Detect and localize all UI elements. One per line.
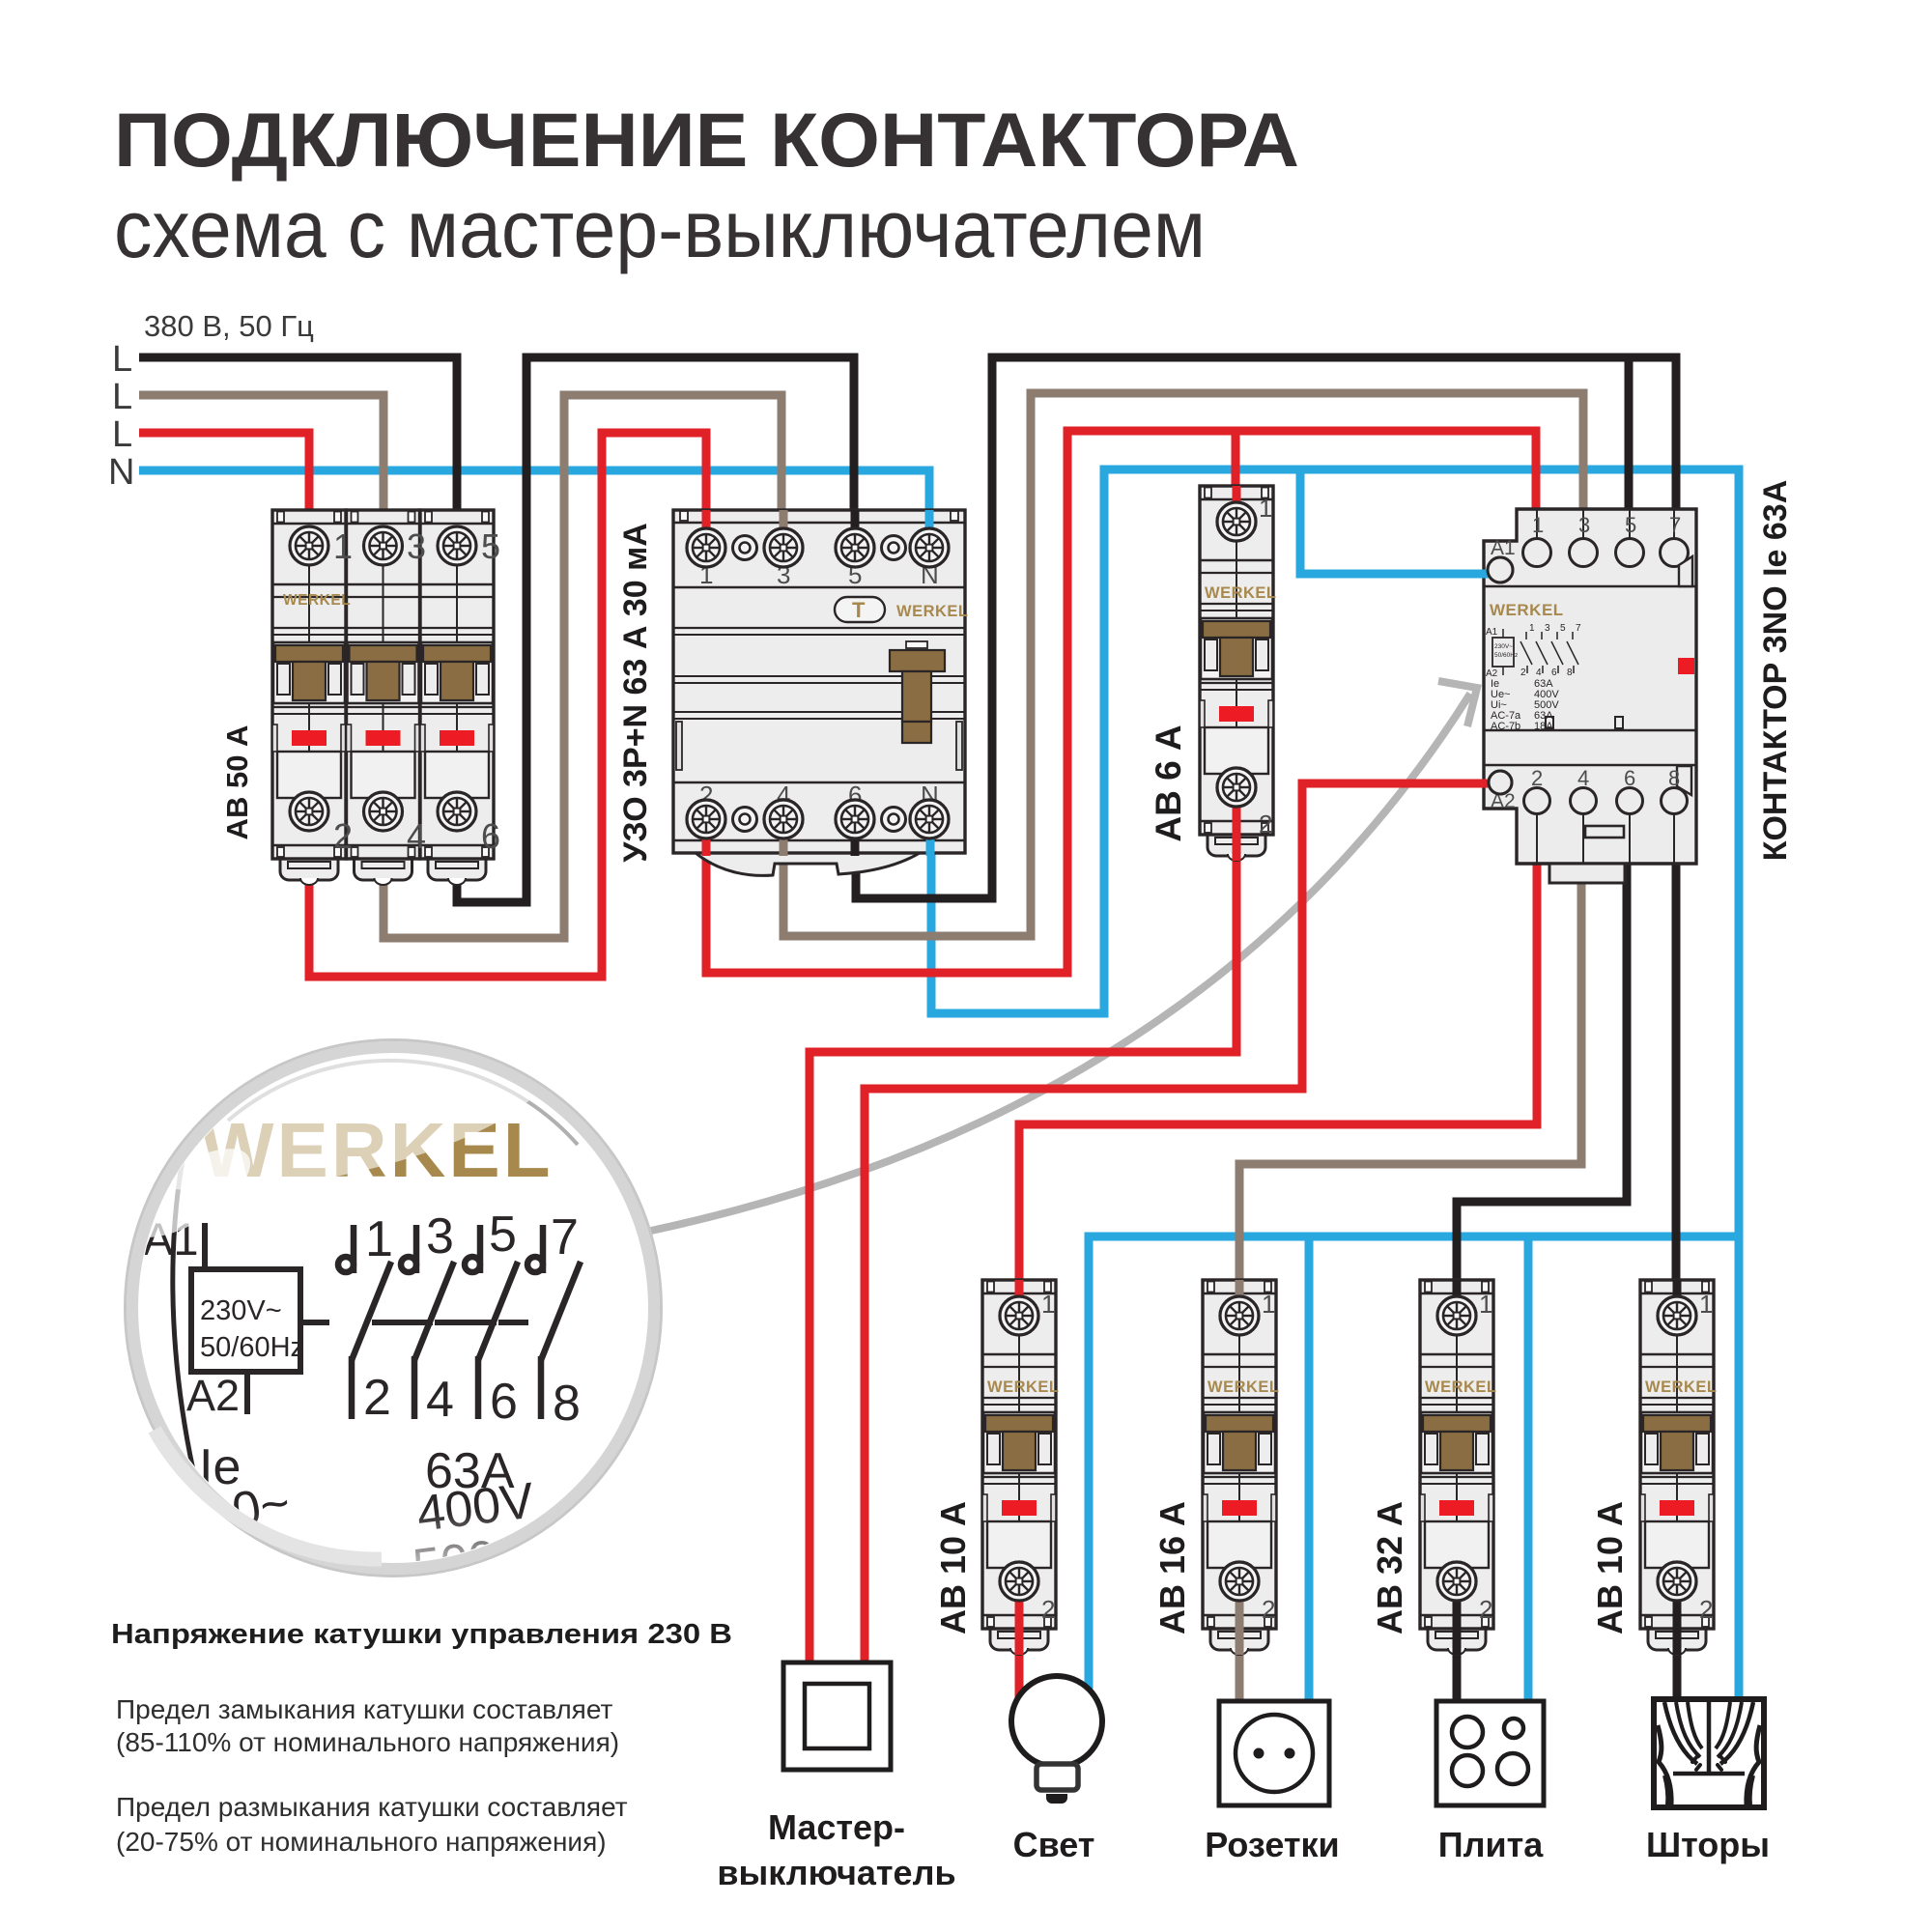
svg-text:1: 1 [1259, 494, 1272, 523]
svg-text:7: 7 [1669, 513, 1681, 537]
svg-text:2: 2 [1259, 810, 1272, 838]
svg-text:WERKEL: WERKEL [1490, 601, 1564, 619]
svg-text:WERKEL: WERKEL [1205, 584, 1277, 602]
svg-text:Напряжение катушки управления: Напряжение катушки управления 230 В [111, 1619, 732, 1650]
svg-text:АВ 10 А: АВ 10 А [1590, 1501, 1630, 1634]
svg-text:4: 4 [426, 1372, 454, 1428]
svg-text:7: 7 [1576, 623, 1581, 634]
svg-text:4: 4 [1536, 668, 1542, 678]
svg-text:Мастер-: Мастер- [768, 1807, 905, 1847]
svg-text:8: 8 [1567, 668, 1573, 678]
svg-text:5: 5 [1625, 513, 1636, 537]
svg-text:2: 2 [1699, 1595, 1713, 1624]
svg-text:5: 5 [481, 526, 500, 566]
svg-text:N: N [108, 452, 134, 493]
svg-text:выключатель: выключатель [717, 1853, 955, 1892]
svg-text:(20-75% от номинального напряж: (20-75% от номинального напряжения) [116, 1827, 607, 1857]
svg-text:5: 5 [489, 1207, 517, 1263]
svg-text:АВ 6 А: АВ 6 А [1149, 724, 1188, 841]
svg-text:Розетки: Розетки [1205, 1825, 1339, 1864]
svg-text:AC-7b: AC-7b [1491, 721, 1520, 732]
svg-text:АВ 50 А: АВ 50 А [220, 725, 254, 840]
svg-text:WERKEL: WERKEL [1207, 1378, 1280, 1396]
svg-text:230V~: 230V~ [1494, 643, 1513, 650]
svg-text:L: L [112, 377, 132, 417]
svg-text:3: 3 [407, 526, 426, 566]
svg-text:1: 1 [1529, 623, 1535, 634]
svg-text:WERKEL: WERKEL [1645, 1378, 1718, 1396]
svg-text:схема с мастер-выключателем: схема с мастер-выключателем [114, 184, 1206, 274]
svg-text:(85-110% от номинального напря: (85-110% от номинального напряжения) [116, 1727, 619, 1757]
svg-text:2: 2 [1262, 1595, 1275, 1624]
svg-text:АВ 16 А: АВ 16 А [1152, 1501, 1192, 1634]
svg-text:1: 1 [1699, 1290, 1713, 1319]
svg-text:5: 5 [1560, 623, 1566, 634]
svg-text:УЗО 3P+N 63 А 30 мА: УЗО 3P+N 63 А 30 мА [617, 523, 654, 863]
svg-text:2: 2 [1479, 1595, 1492, 1624]
svg-text:8: 8 [553, 1376, 581, 1432]
svg-text:Предел размыкания катушки сост: Предел размыкания катушки составляет [116, 1792, 628, 1822]
svg-text:3: 3 [426, 1208, 454, 1264]
svg-text:50/60Hz: 50/60Hz [1494, 652, 1518, 659]
svg-text:1: 1 [1532, 513, 1544, 537]
svg-text:6: 6 [490, 1374, 518, 1430]
svg-text:КОНТАКТОР 3NO Ie 63А: КОНТАКТОР 3NO Ie 63А [1757, 480, 1794, 862]
svg-text:4: 4 [407, 816, 426, 856]
svg-text:3: 3 [1545, 623, 1550, 634]
svg-text:Предел замыкания катушки соста: Предел замыкания катушки составляет [116, 1694, 612, 1724]
svg-text:L: L [112, 414, 132, 455]
svg-text:1: 1 [1041, 1290, 1055, 1319]
svg-text:L: L [112, 339, 132, 380]
svg-text:A1: A1 [1491, 537, 1516, 559]
svg-text:A2: A2 [186, 1371, 240, 1420]
svg-text:2: 2 [1520, 668, 1526, 678]
svg-text:A1: A1 [1486, 627, 1498, 638]
svg-text:WERKEL: WERKEL [896, 603, 969, 620]
svg-text:1: 1 [1479, 1290, 1492, 1319]
svg-text:3: 3 [1578, 513, 1590, 537]
svg-text:18A: 18A [1534, 721, 1553, 732]
svg-text:1: 1 [333, 526, 353, 566]
svg-text:АВ 32 А: АВ 32 А [1370, 1501, 1409, 1634]
svg-text:2: 2 [333, 816, 353, 856]
svg-text:1: 1 [1262, 1290, 1275, 1319]
svg-text:2: 2 [1041, 1595, 1055, 1624]
svg-text:1: 1 [365, 1211, 393, 1267]
svg-text:6: 6 [481, 816, 500, 856]
svg-text:230V~: 230V~ [200, 1295, 282, 1326]
svg-text:WERKEL: WERKEL [283, 592, 351, 609]
svg-text:7: 7 [551, 1209, 579, 1265]
svg-text:50/60Hz: 50/60Hz [200, 1332, 304, 1363]
svg-text:6: 6 [1551, 668, 1557, 678]
svg-text:Шторы: Шторы [1646, 1825, 1770, 1864]
svg-text:380 В, 50 Гц: 380 В, 50 Гц [144, 309, 314, 343]
svg-text:2: 2 [363, 1370, 391, 1426]
svg-text:Свет: Свет [1013, 1825, 1095, 1864]
svg-text:WERKEL: WERKEL [987, 1378, 1060, 1396]
svg-text:ПОДКЛЮЧЕНИЕ КОНТАКТОРА: ПОДКЛЮЧЕНИЕ КОНТАКТОРА [114, 97, 1299, 183]
svg-text:WERKEL: WERKEL [1425, 1378, 1497, 1396]
svg-text:T: T [852, 598, 866, 622]
svg-text:АВ 10 А: АВ 10 А [933, 1501, 973, 1634]
svg-text:Плита: Плита [1438, 1825, 1545, 1864]
